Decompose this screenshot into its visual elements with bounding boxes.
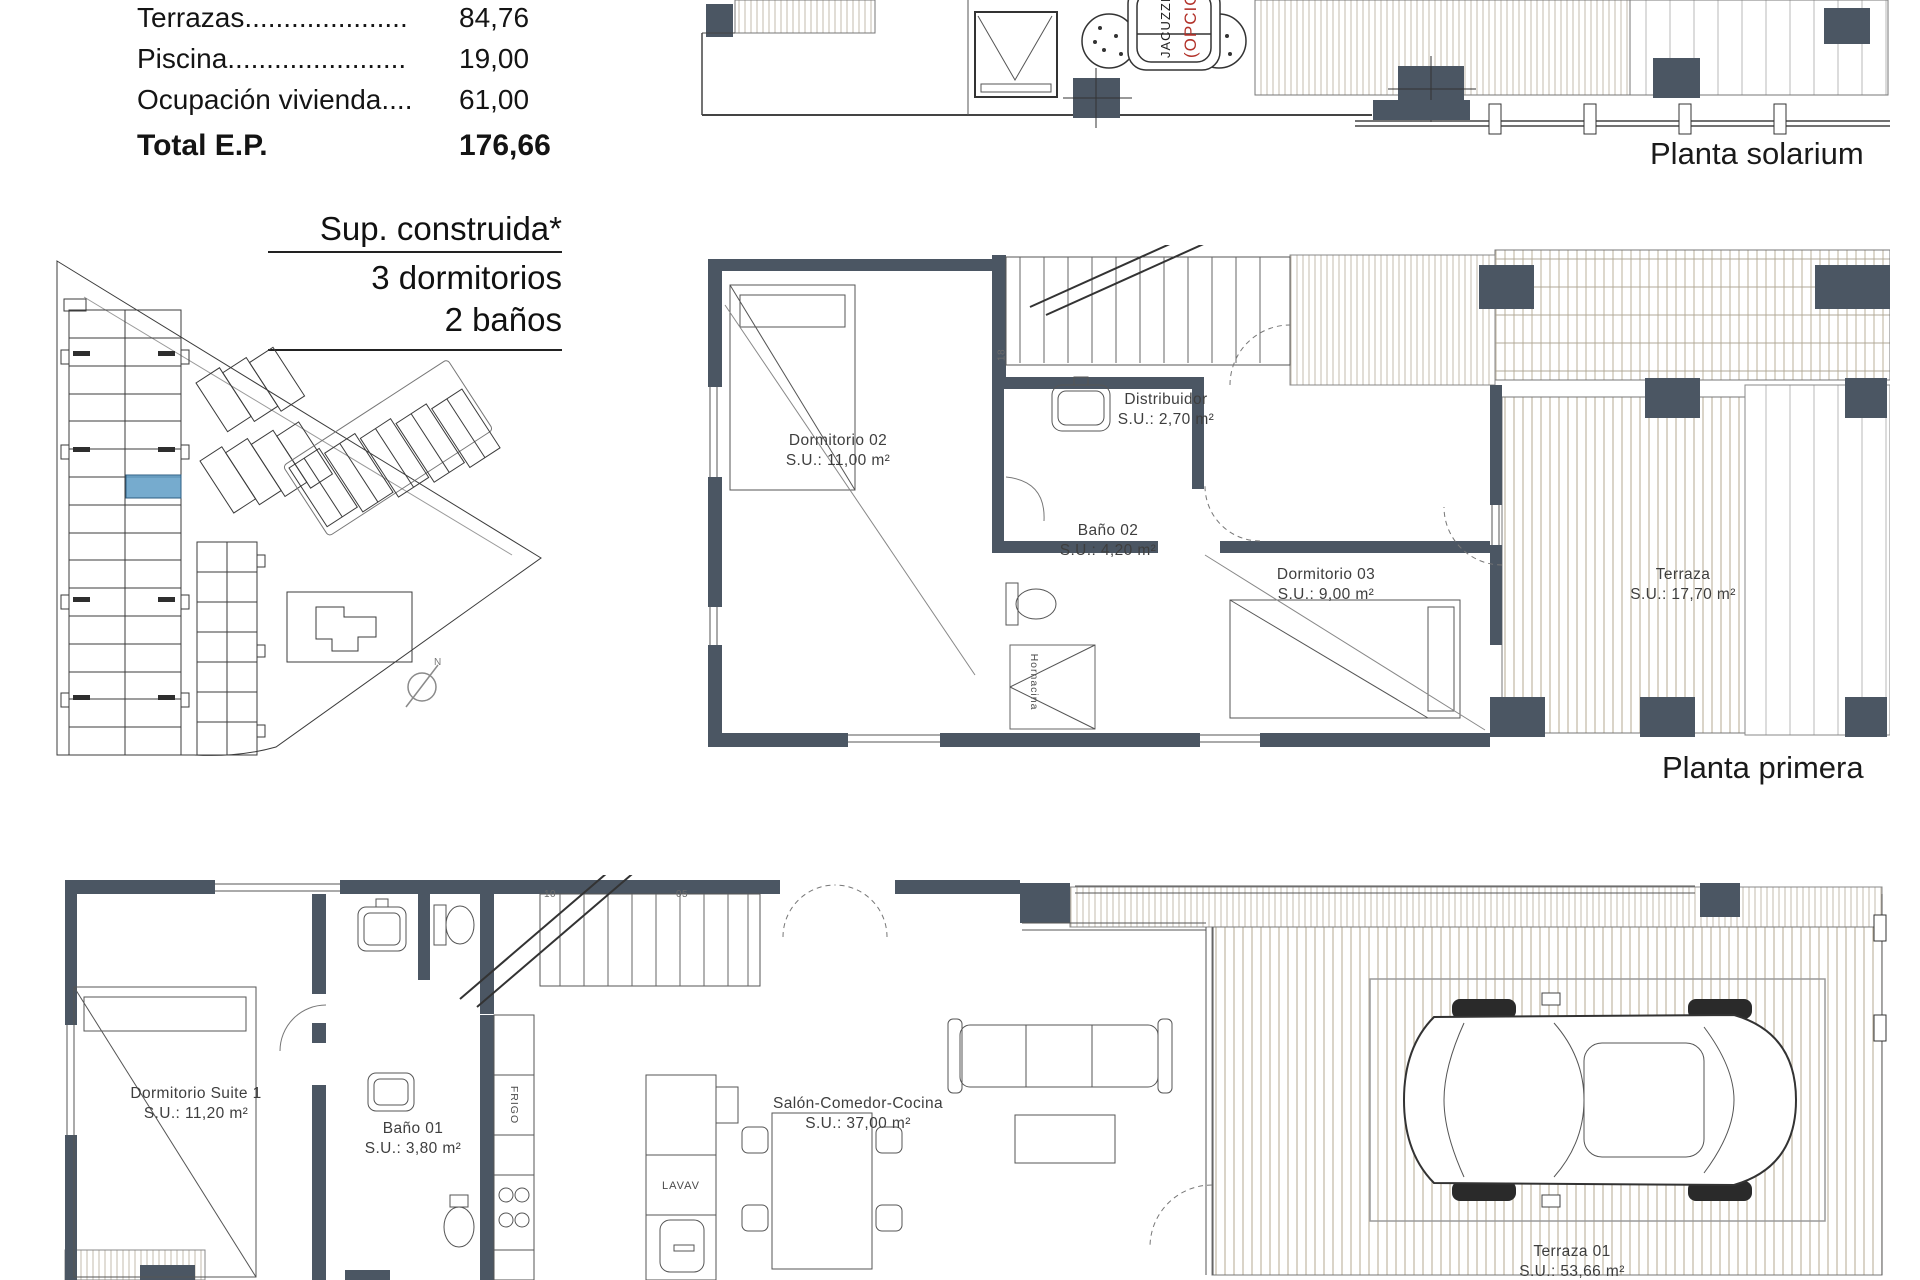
parcel-outline: [57, 261, 541, 755]
room-name: Dormitorio Suite 1: [76, 1084, 316, 1104]
total-value: 176,66: [459, 129, 551, 163]
clubhouse-building: [287, 592, 412, 662]
room-label-dormitorio-suite: Dormitorio Suite 1 S.U.: 11,20 m²: [76, 1084, 316, 1125]
baja-stairs: [460, 875, 760, 1007]
table-row: Piscina....................... 19,00: [137, 43, 567, 84]
room-area: S.U.: 9,00 m²: [1206, 585, 1446, 605]
area-summary-table: Terrazas..................... 84,76 Pisc…: [137, 2, 567, 170]
solarium-linework: [702, 0, 1890, 134]
primera-title: Planta primera: [1662, 750, 1864, 786]
row-value: 61,00: [459, 84, 529, 116]
room-label-salon: Salón-Comedor-Cocina S.U.: 37,00 m²: [738, 1094, 978, 1135]
room-label-bano-01: Baño 01 S.U.: 3,80 m²: [293, 1119, 533, 1160]
room-name: Dormitorio 03: [1206, 565, 1446, 585]
room-label-bano-02: Baño 02 S.U.: 4,20 m²: [988, 521, 1228, 562]
baja-bathroom-fixtures: [358, 899, 474, 1247]
room-area: S.U.: 3,80 m²: [293, 1139, 533, 1159]
room-name: Distribuidor: [1046, 390, 1286, 410]
room-label-distribuidor: Distribuidor S.U.: 2,70 m²: [1046, 390, 1286, 431]
room-area: S.U.: 11,20 m²: [76, 1104, 316, 1124]
row-label: Piscina.......................: [137, 43, 459, 75]
baja-floor-plan: [60, 875, 1890, 1280]
baja-dining: [742, 1113, 902, 1269]
room-name: Baño 01: [293, 1119, 533, 1139]
row-house-marks: [73, 351, 175, 700]
north-label: N: [434, 657, 441, 668]
dishwasher-label: LAVAV: [662, 1180, 700, 1192]
room-label-terraza-primera: Terraza S.U.: 17,70 m²: [1563, 565, 1803, 606]
room-area: S.U.: 37,00 m²: [738, 1114, 978, 1134]
room-name: Dormitorio 02: [718, 431, 958, 451]
room-area: S.U.: 53,66 m²: [1452, 1262, 1692, 1280]
jacuzzi-label: JACUZZI: [1158, 0, 1173, 58]
primera-stairs: [1006, 245, 1290, 365]
table-row: Ocupación vivienda.... 61,00: [137, 84, 567, 125]
room-name: Terraza 01: [1452, 1242, 1692, 1262]
baja-sofa: [948, 1019, 1172, 1163]
primera-floor-plan: [700, 245, 1890, 797]
table-row: Terrazas..................... 84,76: [137, 2, 567, 43]
hornacina-label: Hornacina: [1028, 654, 1040, 711]
stair-dimension: 18: [997, 349, 1008, 361]
stair-dimension: 05: [676, 889, 688, 900]
table-total-row: Total E.P. 176,66: [137, 129, 567, 170]
solarium-floor-plan: JACUZZI (OPCIONAL): [700, 0, 1890, 158]
plan-sheet: Terrazas..................... 84,76 Pisc…: [0, 0, 1920, 1280]
room-label-dormitorio-02: Dormitorio 02 S.U.: 11,00 m²: [718, 431, 958, 472]
angled-cluster-right: [283, 359, 503, 552]
room-name: Terraza: [1563, 565, 1803, 585]
row-label: Terrazas.....................: [137, 2, 459, 34]
row-houses-middle: [197, 542, 265, 755]
room-area: S.U.: 11,00 m²: [718, 451, 958, 471]
row-label: Ocupación vivienda....: [137, 84, 459, 116]
baja-bed-suite: [74, 987, 256, 1277]
site-plan: N: [44, 255, 544, 767]
primera-decks: [1290, 250, 1890, 735]
room-area: S.U.: 2,70 m²: [1046, 410, 1286, 430]
room-area: S.U.: 4,20 m²: [988, 541, 1228, 561]
fridge-label: FRIGO: [508, 1086, 520, 1124]
row-houses-left: [61, 299, 189, 755]
north-compass-icon: N: [406, 657, 441, 707]
room-label-dormitorio-03: Dormitorio 03 S.U.: 9,00 m²: [1206, 565, 1446, 606]
row-value: 19,00: [459, 43, 529, 75]
row-value: 84,76: [459, 2, 529, 34]
highlighted-unit: [126, 475, 181, 498]
spec-title: Sup. construida*: [268, 210, 562, 253]
angled-cluster-upper: [196, 337, 305, 441]
stair-dimension: 10: [544, 889, 556, 900]
room-area: S.U.: 17,70 m²: [1563, 585, 1803, 605]
solarium-title: Planta solarium: [1650, 136, 1864, 172]
jacuzzi-optional-label: (OPCIONAL): [1181, 0, 1200, 58]
total-label: Total E.P.: [137, 129, 459, 163]
room-name: Baño 02: [988, 521, 1228, 541]
room-label-terraza-01: Terraza 01 S.U.: 53,66 m²: [1452, 1242, 1692, 1280]
room-name: Salón-Comedor-Cocina: [738, 1094, 978, 1114]
